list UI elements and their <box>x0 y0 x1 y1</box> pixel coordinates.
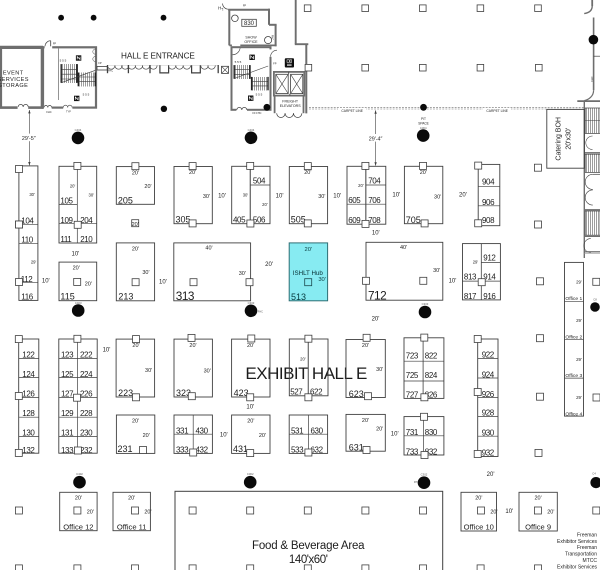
svg-text:125: 125 <box>61 370 74 379</box>
svg-text:430: 430 <box>196 427 209 436</box>
svg-text:105: 105 <box>60 197 73 206</box>
svg-text:10': 10' <box>220 432 228 438</box>
svg-text:20': 20' <box>490 509 497 515</box>
svg-text:C302: C302 <box>421 473 428 477</box>
svg-text:10': 10' <box>449 279 457 285</box>
svg-text:906: 906 <box>482 198 495 207</box>
svg-text:EXHIBIT HALL E: EXHIBIT HALL E <box>245 364 367 383</box>
svg-text:912: 912 <box>483 254 496 263</box>
svg-text:432: 432 <box>196 445 209 454</box>
svg-text:29': 29' <box>473 260 479 265</box>
svg-text:210: 210 <box>80 235 93 244</box>
svg-text:SPACE: SPACE <box>418 122 429 126</box>
svg-text:123: 123 <box>61 351 74 360</box>
svg-text:128: 128 <box>22 409 35 418</box>
svg-text:20': 20' <box>262 202 268 207</box>
svg-text:630: 630 <box>311 427 324 436</box>
svg-text:C8: C8 <box>593 298 597 302</box>
svg-text:305: 305 <box>176 214 191 224</box>
svg-text:30': 30' <box>243 192 249 197</box>
svg-text:Office 2: Office 2 <box>565 335 582 341</box>
svg-text:705: 705 <box>406 215 421 225</box>
svg-text:20': 20' <box>459 192 467 198</box>
svg-text:725: 725 <box>406 371 419 380</box>
svg-text:Freeman: Freeman <box>577 532 597 538</box>
svg-text:29': 29' <box>576 280 582 285</box>
svg-text:20': 20' <box>132 222 139 228</box>
svg-text:Catering BOH: Catering BOH <box>556 117 563 161</box>
svg-text:C4: C4 <box>592 472 596 476</box>
svg-text:ISHLT Hub: ISHLT Hub <box>293 270 324 277</box>
svg-text:313: 313 <box>176 289 195 303</box>
svg-text:20': 20' <box>362 343 369 349</box>
svg-text:731: 731 <box>406 428 419 437</box>
svg-text:Office 11: Office 11 <box>117 523 147 532</box>
svg-text:127: 127 <box>61 390 74 399</box>
svg-text:822: 822 <box>425 352 438 361</box>
svg-text:20': 20' <box>247 343 254 349</box>
svg-text:20': 20' <box>265 262 273 268</box>
svg-text:30': 30' <box>239 271 246 277</box>
svg-text:30': 30' <box>145 368 152 374</box>
svg-text:213: 213 <box>118 291 133 301</box>
svg-text:20': 20' <box>547 509 554 515</box>
svg-text:817: 817 <box>464 292 477 301</box>
svg-text:C404: C404 <box>75 128 82 132</box>
svg-text:29': 29' <box>31 260 37 265</box>
svg-text:222: 222 <box>80 351 93 360</box>
svg-text:C403: C403 <box>75 301 82 305</box>
svg-text:122: 122 <box>22 351 35 360</box>
svg-text:10': 10' <box>392 192 400 198</box>
svg-text:20': 20' <box>85 281 92 287</box>
svg-text:FP: FP <box>243 3 247 7</box>
svg-text:205: 205 <box>118 195 133 205</box>
svg-text:30': 30' <box>204 368 211 374</box>
svg-text:109: 109 <box>60 216 73 225</box>
svg-text:20'x30': 20'x30' <box>565 128 572 150</box>
svg-text:232: 232 <box>80 446 93 455</box>
svg-text:Transportation: Transportation <box>565 552 597 558</box>
svg-text:10': 10' <box>391 431 399 437</box>
svg-text:FHC: FHC <box>590 76 594 81</box>
svg-text:932: 932 <box>482 448 495 457</box>
svg-text:20': 20' <box>128 495 135 501</box>
svg-text:20': 20' <box>75 495 82 501</box>
svg-text:126: 126 <box>22 390 35 399</box>
svg-text:922: 922 <box>482 351 495 360</box>
svg-text:733: 733 <box>406 447 419 456</box>
svg-text:SHOW: SHOW <box>245 36 257 40</box>
svg-text:506: 506 <box>253 215 266 224</box>
svg-text:704: 704 <box>368 177 381 186</box>
svg-text:20': 20' <box>358 183 364 188</box>
svg-text:111: 111 <box>60 235 72 244</box>
svg-text:20': 20' <box>372 317 380 323</box>
svg-text:20': 20' <box>259 433 266 439</box>
svg-text:Office 12: Office 12 <box>63 523 93 532</box>
svg-text:30': 30' <box>203 194 210 200</box>
svg-text:30': 30' <box>89 192 95 197</box>
svg-text:30': 30' <box>376 367 383 373</box>
svg-text:20': 20' <box>420 170 427 176</box>
svg-text:928: 928 <box>482 409 495 418</box>
svg-text:OFFICE: OFFICE <box>244 40 258 44</box>
svg-text:20': 20' <box>475 495 482 501</box>
svg-text:20': 20' <box>300 356 306 361</box>
svg-text:10': 10' <box>372 231 380 237</box>
svg-text:20': 20' <box>362 418 369 424</box>
svg-text:FREIGHT: FREIGHT <box>282 99 299 103</box>
svg-text:527: 527 <box>290 388 303 397</box>
svg-text:124: 124 <box>22 370 35 379</box>
svg-text:HALL E ENTRANCE: HALL E ENTRANCE <box>121 52 195 61</box>
svg-text:230: 230 <box>80 429 93 438</box>
svg-text:30': 30' <box>434 194 441 200</box>
svg-text:29'-4″: 29'-4″ <box>369 136 383 142</box>
svg-text:30': 30' <box>318 194 325 200</box>
svg-text:FP: FP <box>273 61 277 65</box>
svg-text:Office 3: Office 3 <box>565 373 582 379</box>
svg-text:224: 224 <box>80 370 93 379</box>
svg-text:ELEVATORS: ELEVATORS <box>280 104 302 108</box>
svg-text:30': 30' <box>318 277 326 283</box>
svg-text:333: 333 <box>176 445 189 454</box>
svg-text:STORAGE: STORAGE <box>0 83 28 89</box>
svg-text:431: 431 <box>233 444 248 454</box>
svg-text:632: 632 <box>311 445 324 454</box>
svg-text:231: 231 <box>118 444 133 454</box>
svg-text:5 5 5: 5 5 5 <box>60 58 67 62</box>
svg-text:FHC: FHC <box>271 35 275 40</box>
svg-text:20': 20' <box>73 266 80 272</box>
svg-text:FF FHC: FF FHC <box>253 112 262 115</box>
svg-text:FP: FP <box>53 42 57 46</box>
svg-text:723: 723 <box>406 352 419 361</box>
svg-text:Exhibitor Services: Exhibitor Services <box>557 539 598 545</box>
svg-text:5 5 5: 5 5 5 <box>235 60 242 64</box>
svg-text:830: 830 <box>244 21 255 27</box>
svg-text:110: 110 <box>21 235 34 244</box>
svg-text:20': 20' <box>189 343 196 349</box>
svg-text:926: 926 <box>482 390 495 399</box>
svg-text:C303: C303 <box>422 302 429 306</box>
svg-text:20': 20' <box>144 184 151 190</box>
svg-text:712: 712 <box>368 288 386 302</box>
svg-text:140'x60': 140'x60' <box>289 554 328 566</box>
svg-text:129: 129 <box>61 409 74 418</box>
svg-text:Office 4: Office 4 <box>565 411 582 417</box>
svg-text:405: 405 <box>233 215 246 224</box>
svg-text:130: 130 <box>22 429 35 438</box>
svg-text:10': 10' <box>333 194 341 200</box>
svg-text:40': 40' <box>400 245 407 251</box>
svg-text:924: 924 <box>482 370 495 379</box>
svg-text:C302: C302 <box>247 472 254 476</box>
svg-text:Freeman: Freeman <box>577 545 597 551</box>
svg-text:C402: C402 <box>76 472 83 476</box>
svg-text:20': 20' <box>487 472 495 478</box>
svg-text:EVENT: EVENT <box>3 71 24 77</box>
svg-text:20': 20' <box>132 247 139 253</box>
svg-text:PIT: PIT <box>421 117 426 121</box>
svg-text:10': 10' <box>246 404 254 410</box>
svg-text:10': 10' <box>218 194 226 200</box>
svg-text:623: 623 <box>349 389 364 399</box>
svg-text:824: 824 <box>425 371 438 380</box>
svg-text:708: 708 <box>368 216 381 225</box>
svg-text:40': 40' <box>205 245 212 251</box>
svg-text:132: 132 <box>22 446 35 455</box>
svg-text:FP: FP <box>98 61 102 65</box>
svg-text:20': 20' <box>305 247 313 253</box>
svg-text:20': 20' <box>535 495 542 501</box>
svg-text:10': 10' <box>71 251 79 257</box>
svg-text:20': 20' <box>304 170 311 176</box>
svg-text:20': 20' <box>247 419 254 425</box>
svg-text:133: 133 <box>61 446 74 455</box>
svg-text:727: 727 <box>406 391 419 400</box>
svg-text:609: 609 <box>348 216 361 225</box>
svg-text:115: 115 <box>60 292 74 302</box>
svg-text:904: 904 <box>482 177 495 186</box>
svg-text:706: 706 <box>368 196 381 205</box>
svg-text:29': 29' <box>576 395 582 400</box>
svg-text:916: 916 <box>483 292 496 301</box>
svg-text:TYP: TYP <box>66 111 71 114</box>
svg-text:531: 531 <box>291 427 304 436</box>
svg-text:228: 228 <box>80 409 93 418</box>
svg-text:204: 204 <box>80 216 93 225</box>
svg-text:20': 20' <box>132 419 139 425</box>
svg-text:29'-5″: 29'-5″ <box>22 136 36 142</box>
svg-text:C303: C303 <box>248 301 255 305</box>
svg-text:5 5 5: 5 5 5 <box>83 92 90 96</box>
svg-text:20': 20' <box>87 509 94 515</box>
svg-text:30': 30' <box>433 268 440 274</box>
svg-text:FHC: FHC <box>46 110 51 114</box>
svg-text:Food & Beverage Area: Food & Beverage Area <box>252 540 365 552</box>
svg-text:513: 513 <box>291 292 306 302</box>
svg-text:813: 813 <box>464 273 477 282</box>
svg-text:CARPET LINE: CARPET LINE <box>486 109 508 113</box>
svg-text:20': 20' <box>132 170 139 176</box>
svg-text:605: 605 <box>348 196 361 205</box>
svg-text:Office 1: Office 1 <box>565 296 582 302</box>
svg-text:20': 20' <box>70 184 76 189</box>
svg-text:29': 29' <box>576 357 582 362</box>
svg-text:116: 116 <box>21 293 34 302</box>
svg-text:20': 20' <box>376 426 383 432</box>
svg-text:CARPET LINE: CARPET LINE <box>341 109 363 113</box>
svg-text:5 5 5: 5 5 5 <box>256 92 263 96</box>
svg-text:533: 533 <box>291 445 304 454</box>
svg-text:20': 20' <box>144 509 151 515</box>
svg-text:Office 10: Office 10 <box>464 523 494 532</box>
svg-text:631: 631 <box>349 443 364 453</box>
svg-text:10': 10' <box>159 279 167 285</box>
svg-text:30': 30' <box>29 192 35 197</box>
svg-text:505: 505 <box>291 214 306 224</box>
svg-text:331: 331 <box>176 427 189 436</box>
svg-text:10': 10' <box>276 194 284 200</box>
svg-text:FHC: FHC <box>258 311 263 314</box>
svg-text:830: 830 <box>425 428 438 437</box>
svg-text:104: 104 <box>21 216 34 225</box>
svg-text:MTCC: MTCC <box>583 558 598 564</box>
svg-text:930: 930 <box>482 428 495 437</box>
svg-text:10': 10' <box>42 279 50 285</box>
svg-text:30': 30' <box>142 270 149 276</box>
svg-text:10': 10' <box>505 509 513 515</box>
svg-text:29': 29' <box>576 318 582 323</box>
svg-text:131: 131 <box>61 429 74 438</box>
svg-text:Office 9: Office 9 <box>525 523 551 532</box>
svg-text:226: 226 <box>80 390 93 399</box>
svg-text:223: 223 <box>118 388 133 398</box>
svg-text:Exhibitor Services: Exhibitor Services <box>557 565 598 570</box>
svg-text:20': 20' <box>189 170 196 176</box>
svg-text:20': 20' <box>143 433 150 439</box>
svg-text:504: 504 <box>253 177 266 186</box>
svg-text:908: 908 <box>482 216 495 225</box>
svg-text:10': 10' <box>103 348 111 354</box>
svg-text:20': 20' <box>132 343 139 349</box>
